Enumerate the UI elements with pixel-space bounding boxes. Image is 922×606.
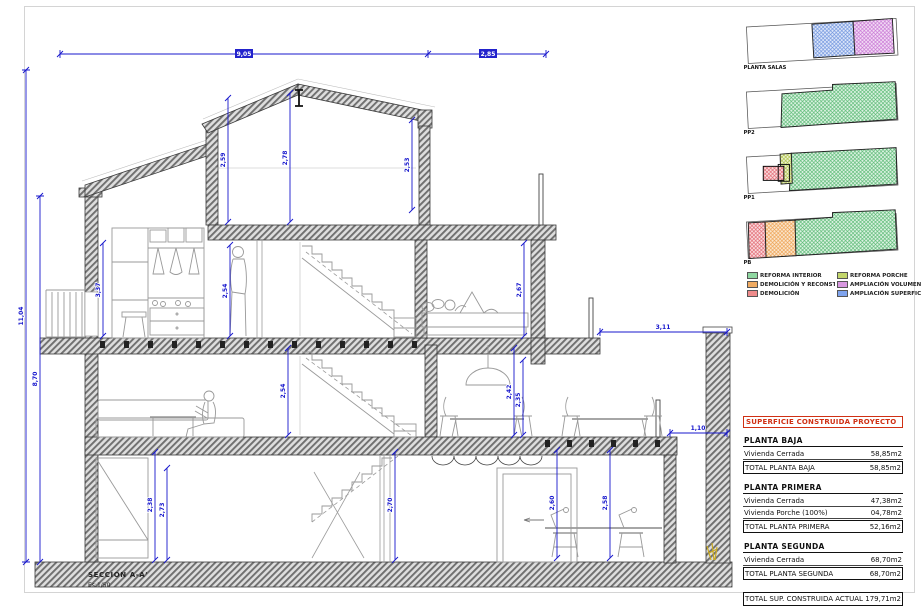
boundary-wall [706,332,730,563]
dim-pb-c: 2,70 [387,449,398,563]
legend-item: DEMOLICIÓN [747,290,835,297]
miniplan-label: PLANTA SALAS [744,65,787,70]
legend-swatch [747,290,758,297]
areas-table-header: SUPERFICIE CONSTRUIDA PROYECTO [743,416,903,428]
legend-label: AMPLIACIÓN VOLUMEN [850,282,921,288]
total-label: TOTAL PLANTA PRIMERA [745,523,829,531]
areas-section-planta-primera: PLANTA PRIMERA Vivienda Cerrada 47,38m2 … [743,482,903,533]
dim-attic-ridge: 2,78 [282,90,293,225]
ground-closet [96,458,148,558]
second-right-wall [531,240,545,338]
row-label: Vivienda Cerrada [744,556,804,564]
legend-label: AMPLIACIÓN SUPERFICIE [850,291,921,297]
dim-p2-right: 2,67 [516,240,527,339]
dim-label-pb-d: 2,60 [549,496,556,511]
stairs-attic [302,246,394,318]
dim-label-right-upper: 3,11 [656,324,671,331]
dim-label-attic-right: 2,53 [404,158,411,173]
miniplan-label: PP1 [744,195,756,200]
bed [422,292,528,335]
attic-left-wall [206,124,218,225]
second-interior-wall [415,240,427,338]
section-title: SECCION A-A' [88,571,148,579]
ground-right-wall [664,455,676,563]
wardrobe [112,228,204,338]
legend-swatch [747,272,758,279]
dim-pb-a: 2,38 [147,449,158,563]
ampliacion-volumen-area [853,19,894,55]
stairs-second [302,352,394,424]
attic-floor-slab [208,225,556,240]
terrace-table [562,397,662,437]
dim-pb-e: 2,58 [602,447,613,561]
legend-label: DEMOLICIÓN [760,291,799,297]
joist-marks [100,341,660,447]
dim-label-top-right: 2,85 [481,51,496,58]
attic-roof-left [202,84,298,133]
dining-beam [531,338,545,364]
demolicion-reconstruccion-area [765,220,796,257]
dim-label-p2-left: 3,37 [95,283,102,298]
dim-top-main: 9,05 [57,49,431,58]
dim-p1-mid2: 2,35 [515,357,526,438]
reforma-interior-area [789,148,897,191]
row-value: 68,70m2 [871,556,902,564]
row-label: Vivienda Porche (100%) [744,509,828,517]
table-row: Vivienda Cerrada 58,85m2 [743,448,903,460]
total-value: 52,16m2 [870,523,901,531]
dim-label-top-main: 9,05 [237,51,252,58]
table-row: Vivienda Cerrada 68,70m2 [743,554,903,566]
ampliacion-superficie-area [812,21,855,57]
dim-label-p1-mid2: 2,35 [515,393,522,408]
left-roof [85,144,207,197]
legend-swatch [837,272,848,279]
total-value: 58,85m2 [870,464,901,472]
table-total-row: TOTAL PLANTA SEGUNDA 68,70m2 [743,567,903,580]
legend-label: DEMOLICIÓN Y RECONSTRUCCIÓN [760,282,835,288]
areas-section-planta-segunda: PLANTA SEGUNDA Vivienda Cerrada 68,70m2 … [743,541,903,580]
legend-item: REFORMA INTERIOR [747,272,835,279]
dim-label-pb-b: 2,73 [159,503,166,518]
sofa [96,400,244,437]
miniplan-cubiertas: PLANTA SALAS [739,12,911,70]
desk [545,508,662,558]
dim-label-p1-left: 2,54 [280,384,287,399]
door [497,468,577,562]
standing-person [230,247,246,337]
stairs [302,246,416,558]
table-row: Vivienda Porche (100%) 04,78m2 [743,507,903,519]
legend-label: REFORMA PORCHE [850,273,908,279]
dim-label-p1-mid: 2,42 [506,385,513,400]
legend-item: AMPLIACIÓN VOLUMEN [837,281,921,288]
dim-total-height: 11,04 [18,67,30,565]
legend-item: DEMOLICIÓN Y RECONSTRUCCIÓN [747,281,835,288]
dim-label-attic-ridge: 2,78 [282,151,289,166]
demolicion-area [763,166,784,180]
areas-table: SUPERFICIE CONSTRUIDA PROYECTO PLANTA BA… [743,416,903,606]
second-partition [257,240,262,338]
row-value: 04,78m2 [871,509,902,517]
first-interior-wall [425,345,437,437]
table-row: Vivienda Cerrada 47,38m2 [743,495,903,507]
scallop-awning [432,456,542,465]
table-total-row: TOTAL PLANTA BAJA 58,85m2 [743,461,903,474]
legend-swatch [837,290,848,297]
section-title: PLANTA SEGUNDA [743,541,903,553]
total-label: TOTAL PLANTA SEGUNDA [745,570,833,578]
legend-item: AMPLIACIÓN SUPERFICIE [837,290,921,297]
total-label: TOTAL PLANTA BAJA [745,464,815,472]
dim-label-eave-height: 8,70 [32,372,39,387]
table-total-row: TOTAL PLANTA PRIMERA 52,16m2 [743,520,903,533]
row-label: Vivienda Cerrada [744,450,804,458]
dim-attic-right: 2,53 [404,117,415,213]
right-eave-block [418,110,432,128]
total-value: 68,70m2 [870,570,901,578]
attic-roof-right [298,84,432,123]
dimensions: 9,05 2,85 11,04 8,70 2,59 2,78 2,53 [18,49,730,565]
miniplan-pp2: PP2 [739,77,911,135]
areas-section-planta-baja: PLANTA BAJA Vivienda Cerrada 58,85m2 TOT… [743,435,903,474]
balcony-rail [46,290,86,338]
mini-plans: PLANTA SALAS PP2 PP1 PB REFORMA INTER [733,0,917,297]
dim-label-p2-mid: 2,54 [222,284,229,299]
section-title: PLANTA BAJA [743,435,903,447]
dim-label-pb-c: 2,70 [387,498,394,513]
dim-label-pb-a: 2,38 [147,498,154,513]
first-floor-slab [85,437,677,455]
legend-swatch [747,281,758,288]
dim-label-right-lower: 1,10 [691,425,706,432]
legend: REFORMA INTERIOR REFORMA PORCHE DEMOLICI… [747,272,917,297]
legend-item: REFORMA PORCHE [837,272,921,279]
dim-top-right: 2,85 [428,49,549,58]
understair-brace [312,472,364,558]
demolicion-area [748,222,766,258]
second-terrace-post [589,298,593,338]
stool [122,312,146,337]
grand-total-label: TOTAL SUP. CONSTRUIDA ACTUAL [745,595,863,603]
dim-label-pb-e: 2,58 [602,496,609,511]
legend-swatch [837,281,848,288]
row-value: 58,85m2 [871,450,902,458]
dim-eave-height: 8,70 [32,193,44,565]
row-value: 47,38m2 [871,497,902,505]
reforma-interior-area [781,82,897,128]
miniplan-pp1: PP1 [739,142,911,200]
balcony-door-opening [85,292,98,336]
attic-right-wall [419,126,430,225]
miniplan-label: PP2 [744,130,756,135]
areas-grand-total: TOTAL SUP. CONSTRUIDA ACTUAL 179,71m2 [743,592,903,606]
dim-label-total-height: 11,04 [18,307,25,326]
dim-label-p2-right: 2,67 [516,283,523,298]
grand-total-value: 179,71m2 [865,595,901,603]
section-title: PLANTA PRIMERA [743,482,903,494]
dim-p1-left: 2,54 [280,345,291,438]
right-panel: PLANTA SALAS PP2 PP1 PB REFORMA INTER [733,0,917,600]
row-label: Vivienda Cerrada [744,497,804,505]
attic-terrace-post [539,174,543,225]
dim-pb-b: 2,73 [159,465,170,563]
miniplan-pb: PB [739,207,911,265]
section-scale: Es:1/50 [88,582,111,589]
reforma-interior-area [795,210,897,256]
seated-person [186,391,215,437]
miniplan-label: PB [744,260,752,265]
dim-label-attic-left: 2,59 [220,153,227,168]
legend-label: REFORMA INTERIOR [760,273,822,279]
section-drawing: 9,05 2,85 11,04 8,70 2,59 2,78 2,53 [0,0,735,600]
